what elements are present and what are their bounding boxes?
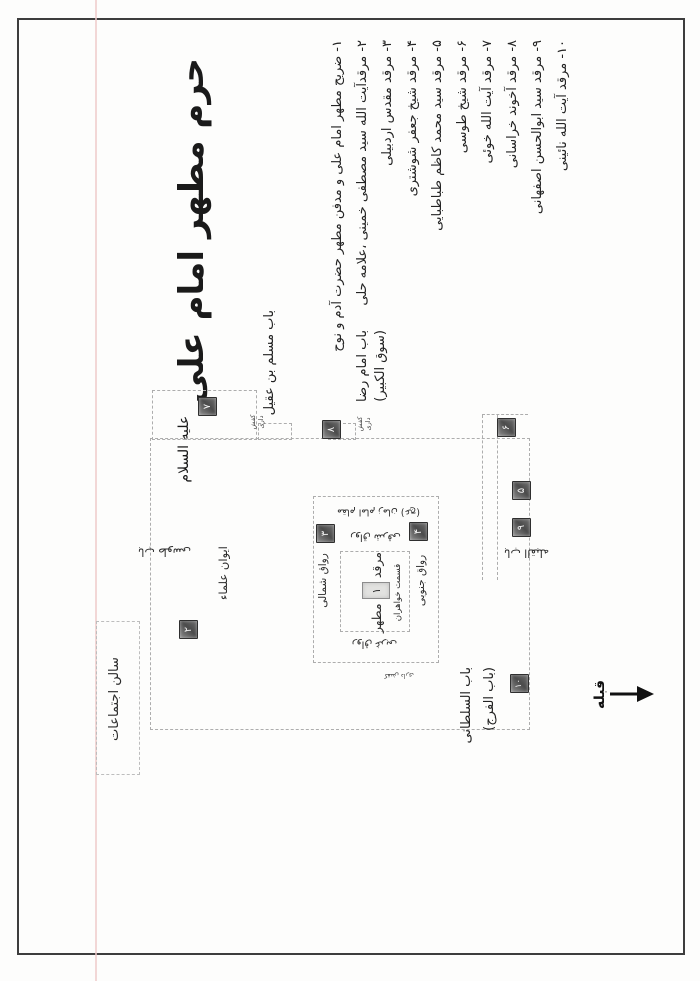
maqam-label: مقام امام زمان (عج) — [319, 507, 439, 518]
qibla-arrow-icon — [610, 685, 654, 703]
gate-reza-line1: باب امام رضا — [354, 330, 372, 422]
gate-tusi-label: باب طوسی — [125, 546, 205, 559]
marker-5: ۵ — [512, 481, 531, 500]
legend-item-9: ۹- مرقد سید ابوالحسن اصفهانی — [530, 40, 544, 352]
marker-10: ۱۰ — [510, 674, 529, 693]
scanned-shrine-plan-page: حرم مطهر امام علی علیه السلام ۱- ضریح مط… — [0, 0, 700, 981]
tomb-row: مرقد ۱ مطهر — [362, 552, 390, 633]
legend-item-8: ۸- مرقد آخوند خراسانی — [505, 40, 519, 352]
legend-item-2: ۲- مرقدآیت الله سید مصطفی خمینی ،علامه ح… — [355, 40, 369, 352]
shoe-keeping-label-east1: کفش داری — [249, 409, 265, 435]
legend-item-10: ۱۰- مرقد آیت الله نائینی — [555, 40, 569, 352]
gate-reza-label: باب امام رضا (سوق الکبیر) — [354, 330, 389, 422]
legend-item-7: ۷- مرقد آیت الله خوئی — [480, 40, 494, 352]
gate-qibla-label: باب القبله — [482, 547, 572, 560]
assembly-hall-label: سالن اجتماعات — [107, 623, 122, 775]
scan-fold-line — [95, 0, 97, 981]
shoe-line1: کفش — [384, 672, 399, 680]
qibla-indicator: قبله — [592, 680, 654, 709]
legend-item-3: ۳- مرقد مقدس اردبیلی — [380, 40, 394, 352]
south-arcade-cap — [482, 414, 528, 415]
ravaq-west-label: رواق غربی — [335, 639, 415, 650]
legend-list: ۱- ضریح مطهر امام علی و مدفن مطهر حضرت آ… — [330, 40, 580, 352]
marker-9: ۹ — [512, 518, 531, 537]
gate-muslim-label: باب مسلم بن عقیل — [262, 310, 277, 422]
gate-reza-line2: (سوق الکبیر) — [372, 330, 390, 422]
legend-item-5: ۵- مرقد سید محمد کاظم طباطبایی — [430, 40, 444, 352]
marker-2: ۲ — [179, 620, 198, 639]
ravaq-east-label: رواق شرقی — [336, 532, 416, 543]
marker-7: ۷ — [198, 397, 217, 416]
shoe-keeping-label-east2: کفش داری — [356, 411, 372, 437]
shoe-line1: کفش — [249, 409, 257, 435]
marker-8: ۸ — [322, 420, 341, 439]
tomb-word-2: مطهر — [369, 603, 384, 633]
shoe-line2: داری — [257, 409, 265, 435]
shoe-line2: داری — [401, 672, 414, 680]
marker-1-tomb: ۱ — [362, 582, 390, 599]
shoe-line2: داری — [364, 411, 372, 437]
gate-sultani-line1: باب السلطانی — [455, 667, 478, 775]
marker-3: ۳ — [316, 524, 335, 543]
legend-item-6: ۶- مرقد شیخ طوسی — [455, 40, 469, 352]
tomb-word-1: مرقد — [369, 552, 384, 578]
shoe-keeping-label-west: کفش داری — [379, 672, 419, 680]
women-section-label: قسمت خواهران — [393, 553, 403, 632]
gate-sultani-label: باب السلطانی (باب الفرج) — [455, 667, 502, 775]
iwan-ulama-label: ایوان علماء — [216, 546, 230, 600]
title-main: حرم مطهر امام علی — [172, 58, 212, 404]
legend-item-4: ۴- مرقد شیخ جعفر شوشتری — [405, 40, 419, 352]
rotated-landscape-canvas: حرم مطهر امام علی علیه السلام ۱- ضریح مط… — [0, 0, 700, 981]
shoe-line1: کفش — [356, 411, 364, 437]
ravaq-north-label: رواق شمالی — [317, 498, 329, 663]
qibla-label: قبله — [592, 680, 608, 709]
gate-sultani-line2: (باب الفرج) — [478, 667, 501, 775]
marker-6: ۶ — [497, 418, 516, 437]
marker-4: ۴ — [409, 522, 428, 541]
legend-item-1: ۱- ضریح مطهر امام علی و مدفن مطهر حضرت آ… — [330, 40, 344, 352]
